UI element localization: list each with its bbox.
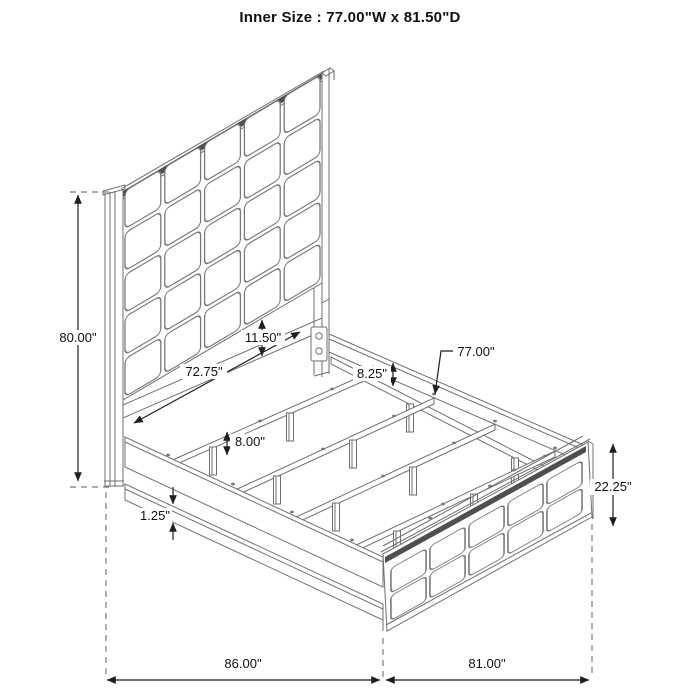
headboard — [103, 68, 334, 487]
dim-leg-height: 8.00" — [227, 432, 269, 455]
headboard-tuft-grid — [125, 75, 320, 396]
dim-footboard-height: 22.25" — [590, 444, 636, 526]
dim-label-rail-height: 8.25" — [357, 366, 387, 381]
dim-headboard-height: 80.00" — [56, 195, 100, 481]
dim-label-trim-thickness: 1.25" — [140, 508, 170, 523]
dim-label-rail-length: 72.75" — [185, 364, 223, 379]
slat — [168, 371, 373, 468]
dim-label-overall-width: 81.00" — [468, 656, 506, 671]
bed-dimension-diagram: Inner Size : 77.00"W x 81.50"D — [0, 0, 700, 700]
headboard-panel — [121, 68, 334, 400]
bed-drawing: 80.00" 72.75" 11.50" 8.25" 77.00" — [0, 0, 700, 700]
dim-label-footboard-height: 22.25" — [594, 479, 632, 494]
dim-label-headboard-height: 80.00" — [59, 330, 97, 345]
dim-overall-length: 86.00" — [107, 656, 380, 680]
headboard-top-cap — [322, 68, 334, 76]
dim-label-slat-length: 77.00" — [457, 344, 495, 359]
dim-overall-width: 81.00" — [386, 656, 589, 680]
rail-bracket — [311, 327, 327, 361]
headboard-left-post — [103, 185, 125, 487]
dim-label-overall-length: 86.00" — [224, 656, 262, 671]
dim-label-leg-height: 8.00" — [235, 434, 265, 449]
dim-label-headboard-gap: 11.50" — [245, 330, 282, 345]
